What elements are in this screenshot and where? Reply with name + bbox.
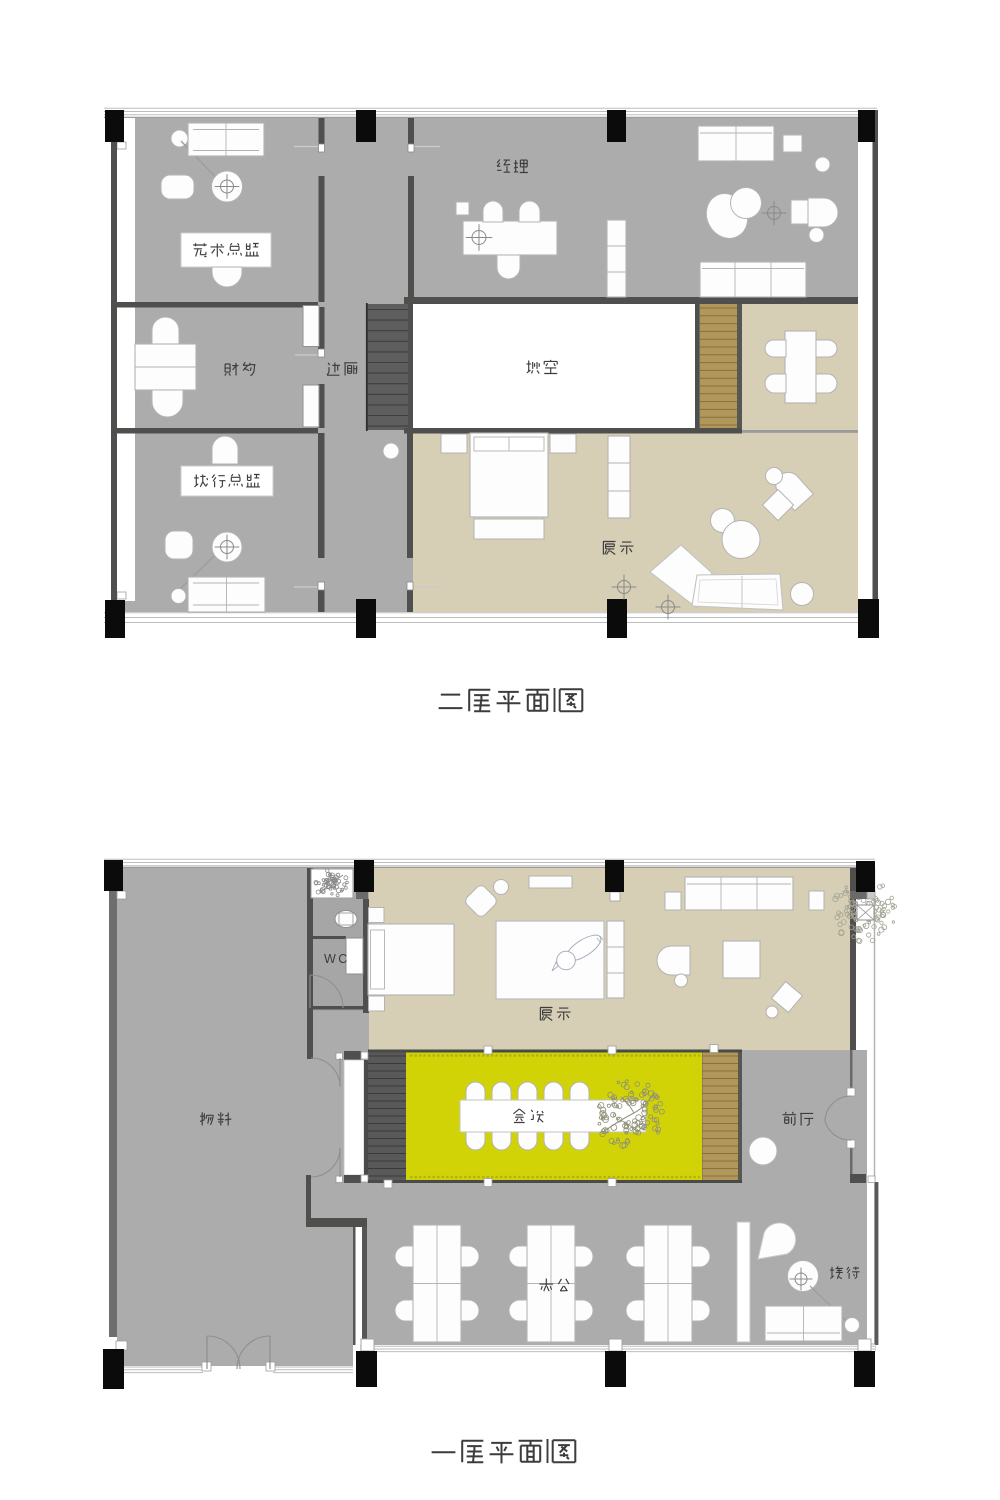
svg-text:WC: WC (324, 952, 350, 966)
